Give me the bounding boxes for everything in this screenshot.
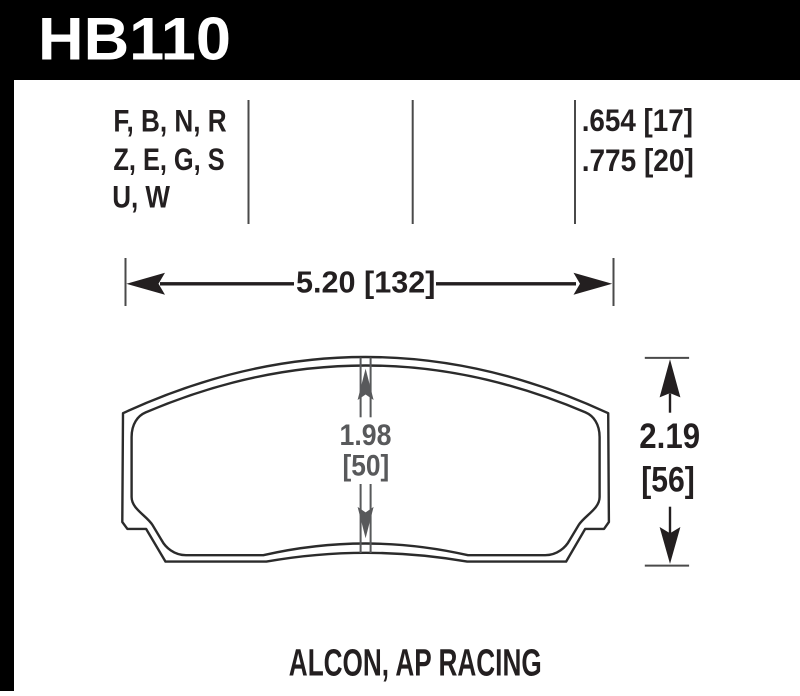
- svg-text:[50]: [50]: [343, 450, 390, 483]
- svg-text:.654 [17]: .654 [17]: [582, 103, 693, 138]
- svg-text:[56]: [56]: [641, 461, 695, 500]
- svg-text:Z, E, G, S: Z, E, G, S: [113, 142, 224, 177]
- svg-text:2.19: 2.19: [639, 417, 700, 456]
- svg-text:F, B, N, R: F, B, N, R: [113, 104, 226, 139]
- svg-text:HB110: HB110: [38, 5, 231, 73]
- svg-text:1.98: 1.98: [340, 419, 392, 452]
- svg-text:5.20 [132]: 5.20 [132]: [296, 266, 436, 300]
- svg-text:U, W: U, W: [112, 180, 170, 215]
- svg-text:ALCON, AP RACING: ALCON, AP RACING: [289, 642, 542, 684]
- svg-text:.775 [20]: .775 [20]: [582, 143, 694, 178]
